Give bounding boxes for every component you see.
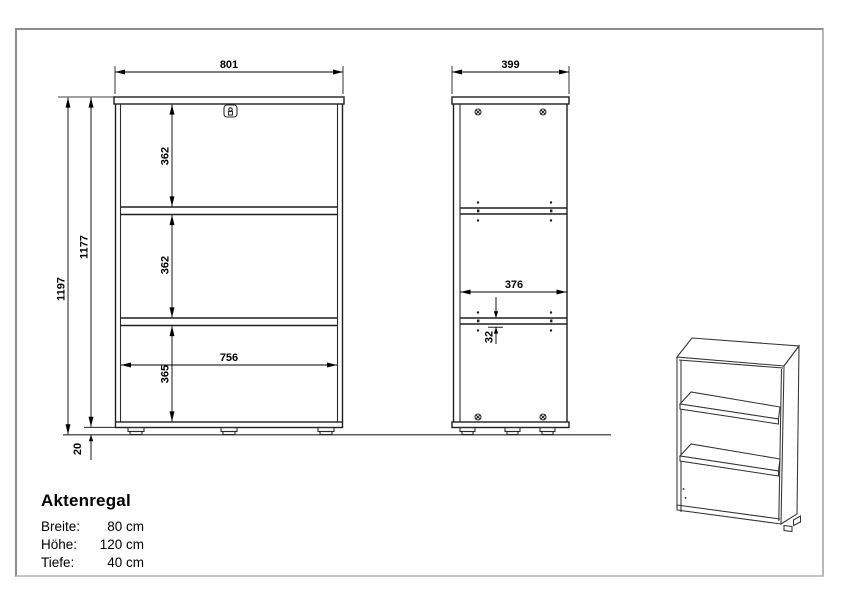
spec-row-hoehe: Höhe: 120 cm [41, 536, 144, 554]
dim-inner-width-label: 756 [220, 352, 238, 364]
spec-value: 40 cm [107, 554, 144, 572]
front-shelf-2 [121, 318, 338, 326]
cam-lock-icon [224, 105, 237, 117]
front-bottom-panel [116, 422, 343, 428]
side-walls [454, 104, 568, 422]
front-side-walls [116, 104, 343, 422]
dim-side-depth-label: 399 [501, 59, 519, 71]
dim-front-height-body-label: 1177 [79, 235, 91, 259]
dim-compartment-bottom-label: 365 [160, 365, 172, 383]
dim-shelf-pin-offset-label: 32 [484, 331, 496, 343]
spec-label: Höhe: [41, 536, 77, 554]
dim-front-height-total-label: 1197 [56, 277, 68, 301]
dim-compartment-middle-label: 362 [160, 256, 172, 274]
product-info: Aktenregal Breite: 80 cm Höhe: 120 cm Ti… [41, 491, 144, 572]
front-top-panel [114, 97, 344, 104]
perspective-view [677, 338, 801, 532]
dim-inner-depth-label: 376 [505, 279, 523, 291]
product-title: Aktenregal [41, 491, 144, 511]
spec-label: Tiefe: [41, 554, 74, 572]
front-shelf-1 [121, 207, 338, 215]
spec-label: Breite: [41, 518, 80, 536]
dim-front-width-label: 801 [220, 59, 238, 71]
dim-front-foot-height-label: 20 [72, 443, 84, 455]
side-top-panel [452, 97, 569, 104]
screw-icons [475, 109, 546, 420]
side-view [452, 97, 569, 435]
side-feet [460, 428, 555, 435]
side-shelf-1 [460, 201, 567, 221]
dimensions: 801 399 1197 1177 20 362 362 365 756 376 [56, 59, 570, 460]
spec-value: 80 cm [107, 518, 144, 536]
front-view [114, 97, 344, 435]
spec-row-tiefe: Tiefe: 40 cm [41, 554, 144, 572]
spec-row-breite: Breite: 80 cm [41, 518, 144, 536]
front-feet [128, 428, 334, 435]
side-bottom-panel [452, 422, 569, 428]
side-shelf-2 [460, 311, 567, 331]
spec-value: 120 cm [100, 536, 144, 554]
dim-compartment-top-label: 362 [160, 147, 172, 165]
